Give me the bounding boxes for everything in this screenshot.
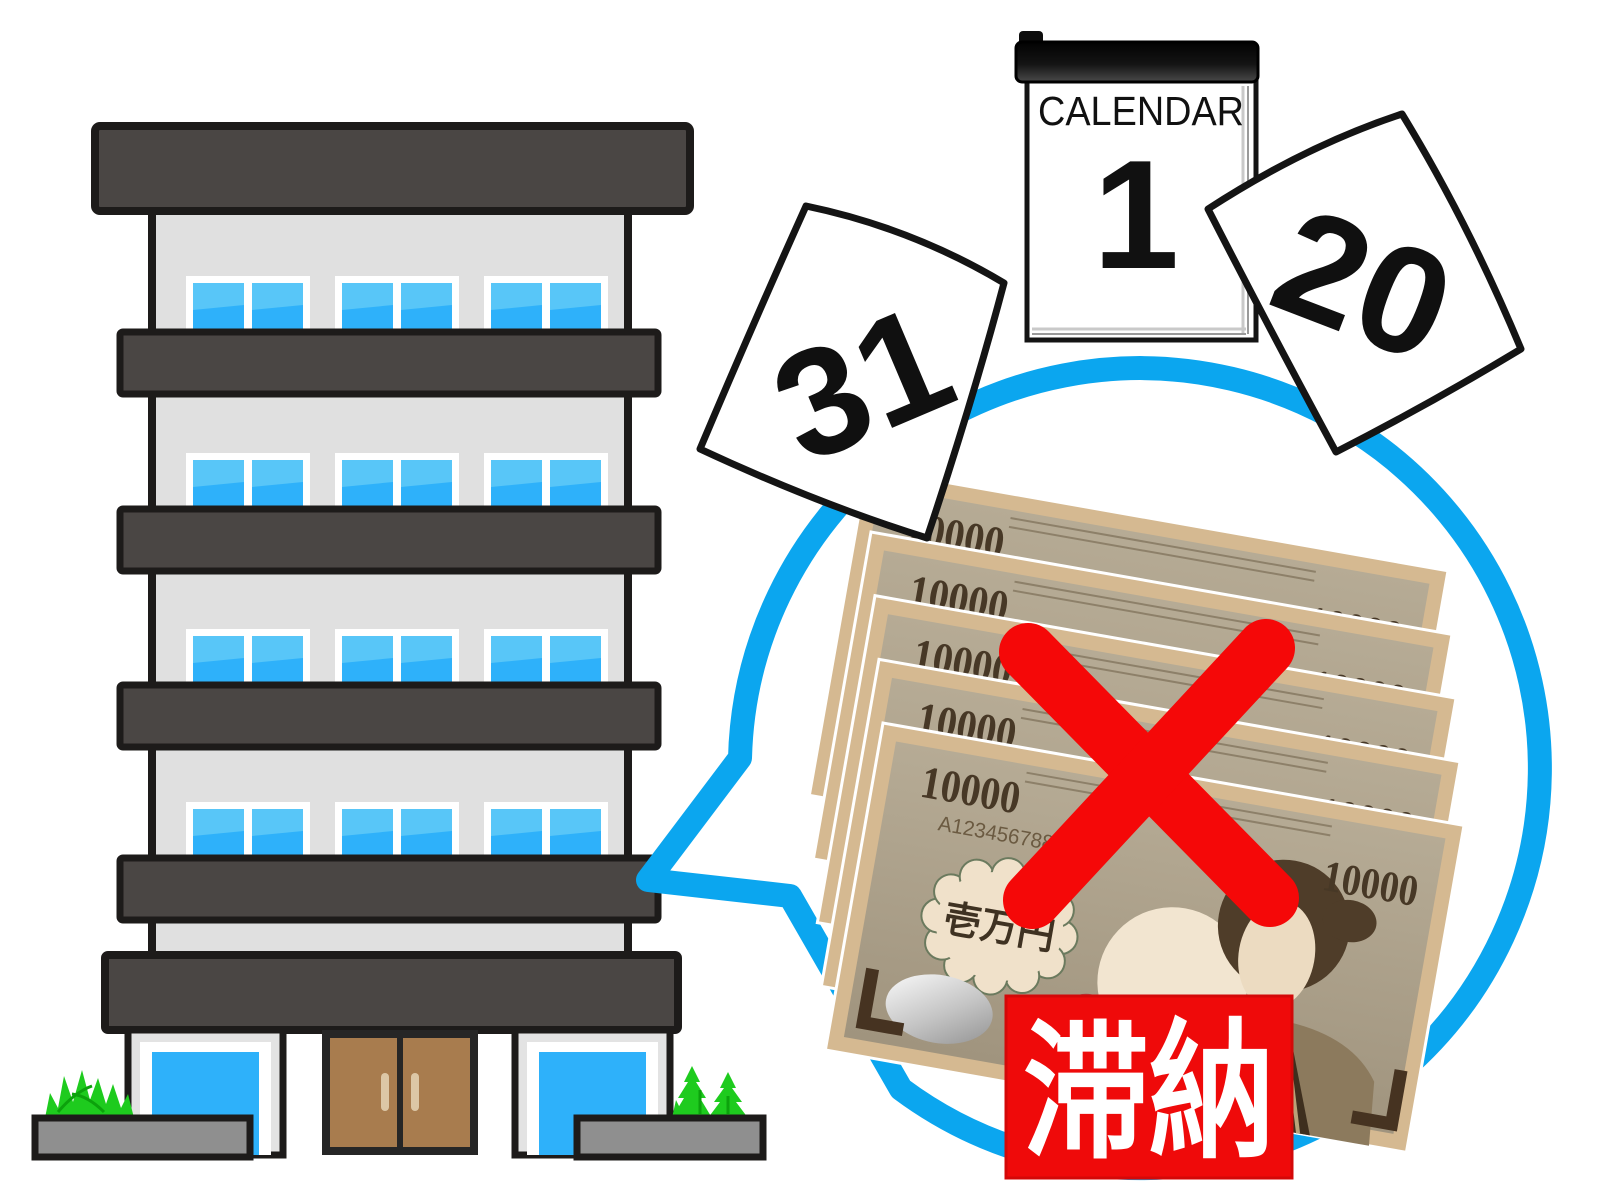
planter-right	[577, 1118, 763, 1157]
planter-left	[35, 1118, 250, 1157]
door-handle-right-icon	[411, 1073, 419, 1111]
arrears-stamp-text: 滞納	[1023, 1008, 1275, 1176]
calendar: CALENDAR 1	[1016, 31, 1258, 340]
bush-right-icon	[672, 1066, 748, 1118]
calendar-header-bar	[1016, 42, 1258, 82]
arrears-stamp: 滞納	[1006, 996, 1292, 1178]
illustration-canvas: 10000 A1234567889 10000 A1234567889 壱万円	[0, 0, 1600, 1200]
bush-left-icon	[45, 1070, 134, 1118]
calendar-day-number: 1	[1093, 128, 1179, 301]
building-base-band	[105, 955, 678, 1030]
entrance-door	[322, 1030, 478, 1155]
building-roof	[95, 126, 690, 211]
door-handle-left-icon	[381, 1073, 389, 1111]
apartment-building	[35, 126, 763, 1157]
